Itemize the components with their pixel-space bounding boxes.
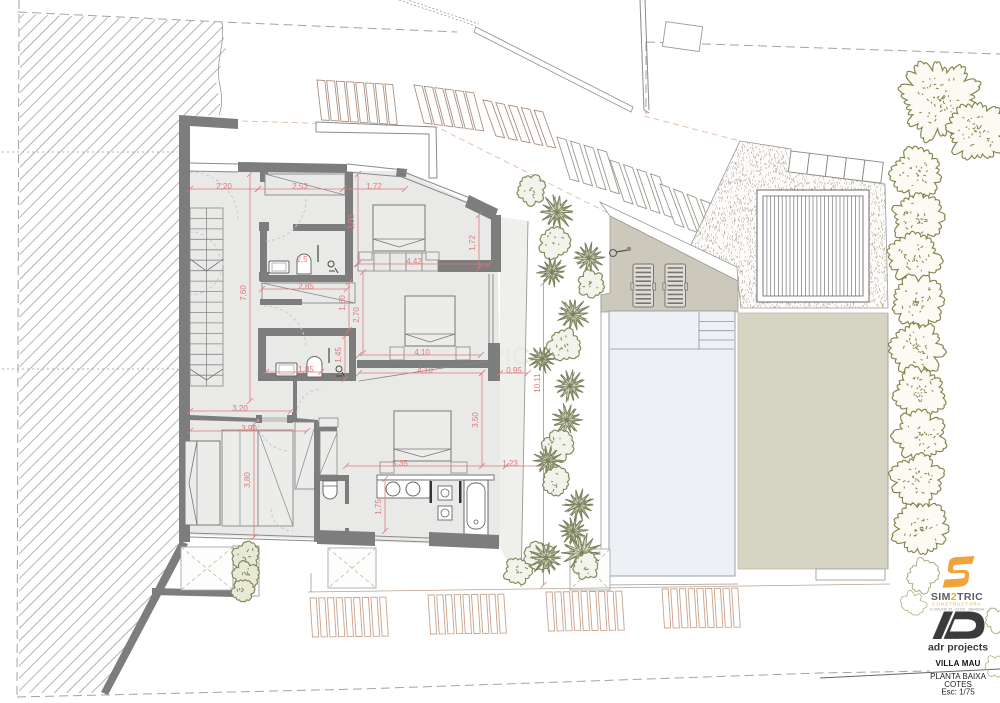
svg-text:3,80: 3,80 [243,472,252,488]
svg-text:1,60: 1,60 [338,295,347,311]
svg-text:2,20: 2,20 [216,182,232,191]
svg-text:1,75: 1,75 [374,499,383,515]
svg-text:10,11: 10,11 [533,373,542,393]
svg-text:4,42: 4,42 [406,257,422,266]
svg-text:4,10: 4,10 [417,366,433,375]
svg-text:3,00: 3,00 [347,214,356,230]
svg-text:0,95: 0,95 [506,366,522,375]
svg-text:1,72: 1,72 [468,235,477,251]
svg-text:5,35: 5,35 [392,459,408,468]
svg-text:2,5: 2,5 [296,255,308,264]
svg-text:1,72: 1,72 [366,182,382,191]
svg-text:2,85: 2,85 [298,282,314,291]
svg-text:1,85: 1,85 [298,365,314,374]
svg-text:7,60: 7,60 [239,285,248,301]
svg-text:4,10: 4,10 [414,348,430,357]
svg-text:3,90: 3,90 [241,424,257,433]
svg-text:C/ MAJOR 25 · 03720 · BENISSA: C/ MAJOR 25 · 03720 · BENISSA [930,608,985,612]
svg-text:3,50: 3,50 [471,412,480,428]
svg-text:1,45: 1,45 [334,347,343,363]
svg-text:adr projects: adr projects [928,642,988,654]
svg-text:VILLA MAU: VILLA MAU [935,659,980,668]
svg-text:a: a [954,632,959,641]
svg-text:Esc: 1/75: Esc: 1/75 [941,688,975,697]
svg-text:3,20: 3,20 [232,404,248,413]
svg-text:2,53: 2,53 [292,182,308,191]
svg-text:CONSTRUCTORA: CONSTRUCTORA [932,602,981,607]
svg-text:2,70: 2,70 [352,307,361,323]
svg-text:1,23: 1,23 [502,459,518,468]
